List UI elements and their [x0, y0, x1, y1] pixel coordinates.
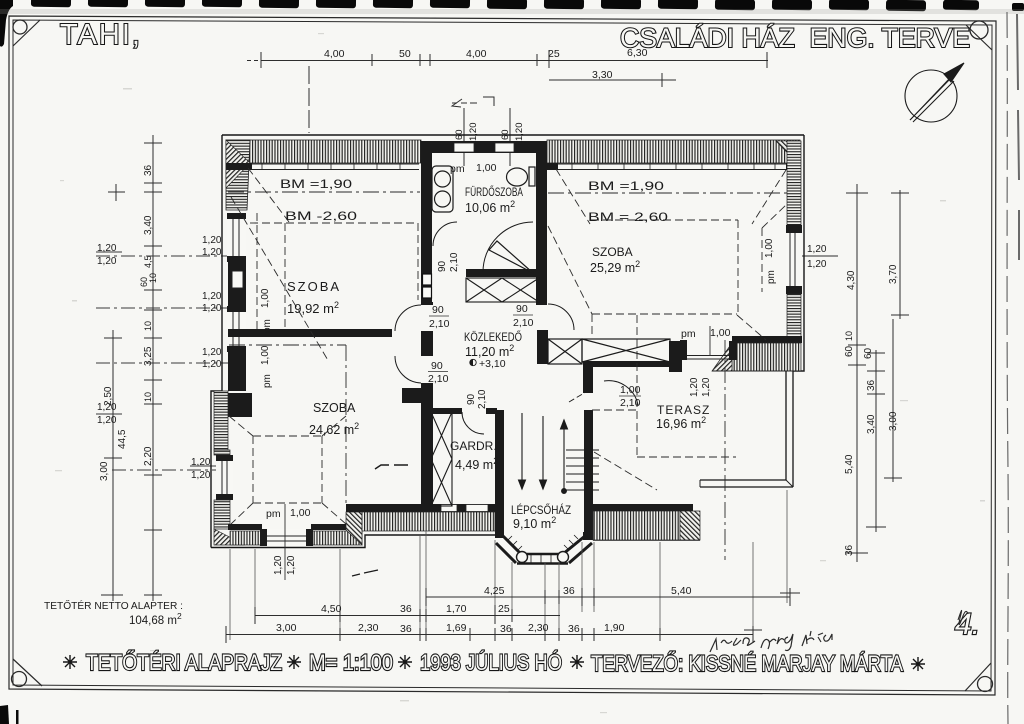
svg-text:2,10: 2,10 — [620, 397, 641, 409]
svg-text:1993 JÚLIUS HÓ: 1993 JÚLIUS HÓ — [420, 650, 562, 675]
svg-text:1,20: 1,20 — [202, 235, 222, 246]
svg-text:1,20: 1,20 — [701, 377, 712, 397]
svg-text:36: 36 — [844, 544, 855, 556]
svg-text:25: 25 — [498, 603, 510, 615]
svg-text:SZOBA: SZOBA — [592, 245, 633, 259]
svg-text:1,70: 1,70 — [446, 603, 467, 615]
svg-text:36: 36 — [143, 164, 154, 176]
svg-text:90: 90 — [516, 303, 528, 315]
svg-text:4,49 m2: 4,49 m2 — [455, 456, 498, 472]
svg-text:1,00: 1,00 — [620, 384, 641, 396]
svg-text:36: 36 — [500, 623, 512, 635]
svg-text:FÜRDŐSZOBA: FÜRDŐSZOBA — [465, 184, 523, 199]
svg-text:3,00: 3,00 — [99, 461, 110, 481]
svg-text:10: 10 — [148, 273, 158, 283]
svg-text:16,96 m2: 16,96 m2 — [656, 415, 706, 431]
svg-text:2,10: 2,10 — [449, 252, 460, 272]
svg-text:36: 36 — [568, 623, 580, 635]
svg-text:4,30: 4,30 — [846, 270, 857, 290]
svg-text:KÖZLEKEDŐ: KÖZLEKEDŐ — [464, 329, 522, 344]
svg-text:90: 90 — [466, 393, 477, 405]
svg-text:36: 36 — [400, 623, 412, 635]
svg-text:3,30: 3,30 — [592, 69, 613, 81]
svg-text:3,40: 3,40 — [143, 215, 154, 235]
svg-text:pm: pm — [262, 319, 273, 333]
svg-text:1,20: 1,20 — [273, 555, 284, 575]
svg-text:25,29 m2: 25,29 m2 — [590, 259, 640, 275]
svg-text:1,20: 1,20 — [191, 470, 211, 481]
svg-text:1,20: 1,20 — [807, 244, 827, 255]
svg-text:10,06 m2: 10,06 m2 — [465, 199, 515, 215]
svg-text:1,00: 1,00 — [710, 327, 731, 339]
svg-text:1,20: 1,20 — [514, 123, 525, 142]
svg-text:2,10: 2,10 — [428, 373, 449, 385]
svg-text:1,20: 1,20 — [468, 123, 479, 142]
svg-text:pm: pm — [681, 328, 696, 340]
svg-text:1,20: 1,20 — [97, 402, 117, 413]
svg-text:TETŐTÉRI ALAPRAJZ: TETŐTÉRI ALAPRAJZ — [86, 650, 282, 675]
svg-text:1,20: 1,20 — [202, 347, 222, 358]
svg-text:10: 10 — [143, 392, 153, 402]
svg-text:TAHI,: TAHI, — [60, 19, 142, 51]
svg-text:CSALÁDI HÁZ ENG. TERVE: CSALÁDI HÁZ ENG. TERVE — [620, 23, 970, 53]
svg-text:pm: pm — [262, 374, 273, 388]
svg-text:60: 60 — [844, 345, 855, 357]
svg-text:1,00: 1,00 — [260, 345, 271, 365]
svg-text:2,20: 2,20 — [143, 446, 154, 466]
svg-text:4,5: 4,5 — [143, 255, 153, 268]
svg-text:1,00: 1,00 — [476, 162, 497, 174]
svg-text:1,20: 1,20 — [202, 247, 222, 258]
svg-text:1,20: 1,20 — [807, 259, 827, 270]
svg-text:GARDR.: GARDR. — [450, 439, 497, 453]
svg-text:M= 1:100: M= 1:100 — [309, 650, 393, 675]
svg-text:10: 10 — [143, 321, 153, 331]
svg-text:BM = 2,60: BM = 2,60 — [588, 212, 668, 224]
svg-text:pm: pm — [450, 163, 465, 175]
svg-text:2,10: 2,10 — [477, 389, 488, 409]
svg-text:1,20: 1,20 — [97, 243, 117, 254]
svg-text:1,20: 1,20 — [202, 291, 222, 302]
svg-text:SZOBA: SZOBA — [287, 279, 341, 294]
svg-text:1,69: 1,69 — [446, 622, 467, 634]
svg-text:pm: pm — [266, 508, 281, 520]
svg-text:BM -2,60: BM -2,60 — [285, 211, 357, 223]
svg-text:1,20: 1,20 — [202, 359, 222, 370]
svg-text:2,10: 2,10 — [513, 317, 534, 329]
svg-text:1,20: 1,20 — [191, 457, 211, 468]
svg-text:SZOBA: SZOBA — [313, 401, 356, 415]
svg-text:3,70: 3,70 — [888, 264, 899, 284]
svg-text:2,30: 2,30 — [358, 622, 379, 634]
svg-text:6,30: 6,30 — [627, 47, 648, 59]
svg-text:1,20: 1,20 — [97, 256, 117, 267]
svg-text:36: 36 — [400, 603, 412, 615]
svg-text:1,00: 1,00 — [260, 288, 271, 308]
svg-text:9,10 m2: 9,10 m2 — [513, 515, 556, 531]
svg-text:1,20: 1,20 — [97, 415, 117, 426]
svg-text:pm: pm — [766, 270, 777, 284]
svg-text:5,40: 5,40 — [844, 454, 855, 474]
svg-text:10: 10 — [844, 331, 854, 341]
svg-text:1,00: 1,00 — [764, 238, 775, 258]
svg-text:36: 36 — [866, 379, 877, 391]
svg-text:4,25: 4,25 — [484, 585, 505, 597]
svg-text:TERVEZŐ: KISSNÉ MARJAY MÁRTA: TERVEZŐ: KISSNÉ MARJAY MÁRTA — [591, 651, 903, 676]
svg-text:3,40: 3,40 — [866, 414, 877, 434]
svg-text:4,00: 4,00 — [466, 48, 487, 60]
svg-text:4,50: 4,50 — [321, 603, 342, 615]
svg-text:50: 50 — [399, 48, 411, 60]
svg-text:44,5: 44,5 — [117, 429, 128, 449]
svg-text:1,90: 1,90 — [604, 622, 625, 634]
svg-text:1,20: 1,20 — [286, 555, 297, 575]
svg-text:19,92 m2: 19,92 m2 — [287, 300, 339, 316]
svg-text:11,20 m2: 11,20 m2 — [465, 343, 514, 359]
svg-text:4,00: 4,00 — [324, 48, 345, 60]
svg-text:24,62 m2: 24,62 m2 — [309, 421, 359, 437]
svg-text:1,20: 1,20 — [202, 303, 222, 314]
svg-text:25: 25 — [548, 48, 560, 60]
svg-text:2,10: 2,10 — [429, 318, 450, 330]
svg-text:3,00: 3,00 — [888, 411, 899, 431]
svg-text:90: 90 — [432, 304, 444, 316]
svg-text:BM =1,90: BM =1,90 — [280, 179, 352, 191]
svg-text:TETŐTÉR NETTO ALAPTER :: TETŐTÉR NETTO ALAPTER : — [44, 598, 183, 612]
svg-text:LÉPCSŐHÁZ: LÉPCSŐHÁZ — [511, 502, 571, 517]
svg-text:60: 60 — [863, 347, 874, 359]
svg-text:90: 90 — [437, 260, 448, 272]
svg-text:1,20: 1,20 — [689, 377, 700, 397]
svg-text:+3,10: +3,10 — [479, 358, 506, 370]
svg-text:2,30: 2,30 — [528, 622, 549, 634]
svg-text:36: 36 — [563, 585, 575, 597]
svg-text:BM =1,90: BM =1,90 — [588, 181, 664, 193]
svg-text:90: 90 — [431, 360, 443, 372]
svg-text:5,40: 5,40 — [671, 585, 692, 597]
svg-text:1,00: 1,00 — [290, 507, 311, 519]
svg-text:3,00: 3,00 — [276, 622, 297, 634]
